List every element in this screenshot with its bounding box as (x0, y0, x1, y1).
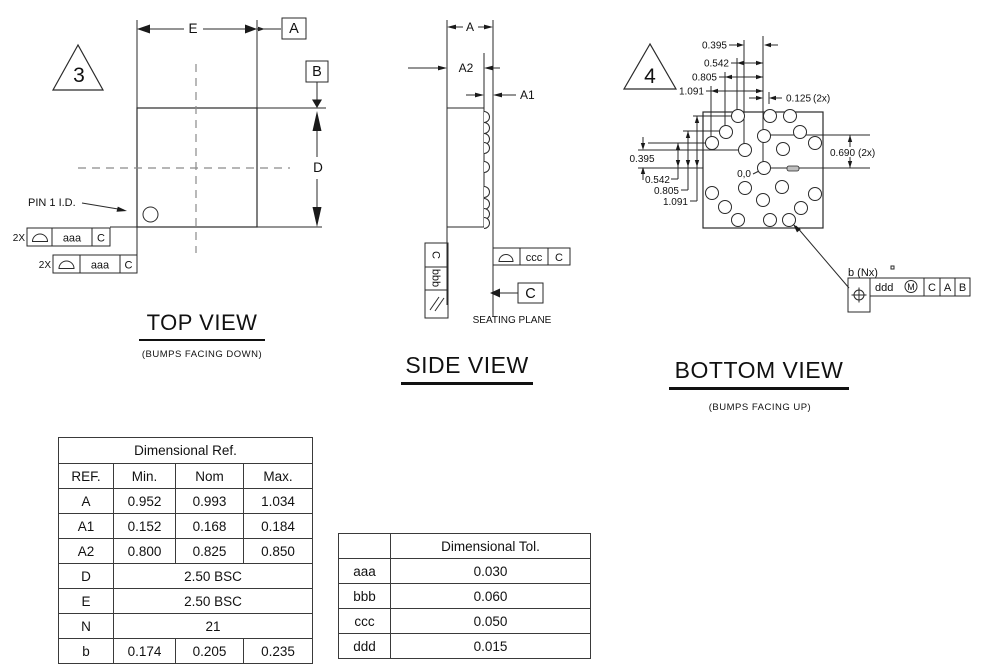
header-ref: REF. (59, 464, 114, 489)
cell: 0.850 (244, 539, 313, 564)
table-row: A 0.952 0.993 1.034 (59, 489, 313, 514)
cell: 0.030 (391, 559, 591, 584)
dim-left-0805: 0.805 (654, 131, 690, 197)
bottom-view-drawing: 4 0.395 0.542 0.805 (620, 20, 981, 320)
cell: 0.800 (114, 539, 176, 564)
pin1-indicator: PIN 1 I.D. (28, 197, 158, 222)
fcf-ccc-tol: ccc (526, 252, 543, 264)
top-view-title: TOP VIEW (139, 310, 265, 341)
dim-A: A (447, 20, 493, 34)
dimensional-ref-table: Dimensional Ref. REF. Min. Nom Max. A 0.… (58, 437, 313, 664)
fcf-position-datum1: C (928, 282, 936, 294)
dim-value: 0.125 (786, 94, 811, 105)
profile-surface-icon (499, 255, 513, 262)
cell: 0.168 (176, 514, 244, 539)
cell: 0.060 (391, 584, 591, 609)
flag-note-4: 4 (624, 44, 676, 89)
table-row: A2 0.800 0.825 0.850 (59, 539, 313, 564)
fcf2-datum: C (125, 260, 133, 272)
fcf2-tol: aaa (91, 260, 110, 272)
side-bumps (484, 112, 490, 229)
dim-top-1091: 1.091 (679, 87, 763, 98)
cell: 0.952 (114, 489, 176, 514)
fcf-ccc-datum: C (555, 252, 563, 264)
cell: 0.993 (176, 489, 244, 514)
datum-C-label: C (525, 286, 535, 302)
datum-C-box: C (490, 283, 543, 303)
fcf-profile-ccc: ccc C (493, 248, 570, 265)
cell: ccc (339, 609, 391, 634)
cell: 0.050 (391, 609, 591, 634)
table-title-row: Dimensional Tol. (339, 534, 591, 559)
cell: 0.152 (114, 514, 176, 539)
fcf-parallelism-tol: bbb (430, 269, 442, 287)
dim-value: 1.091 (679, 87, 704, 98)
table-row: ccc 0.050 (339, 609, 591, 634)
datum-A-label: A (289, 21, 299, 37)
dim-A1: A1 (466, 88, 535, 102)
profile-surface-icon (33, 234, 48, 242)
dimensional-tol-table: Dimensional Tol. aaa 0.030 bbb 0.060 ccc… (338, 533, 591, 659)
table-row: aaa 0.030 (339, 559, 591, 584)
dim-value: 0.542 (645, 175, 670, 186)
cell: 0.825 (176, 539, 244, 564)
table-row: b 0.174 0.205 0.235 (59, 639, 313, 664)
profile-surface-icon (59, 261, 74, 268)
fcf-profile-1: 2X aaa C (13, 228, 110, 246)
fcf1-datum: C (97, 233, 105, 245)
cell: 0.174 (114, 639, 176, 664)
datum-A-box: A (282, 18, 306, 39)
cell: N (59, 614, 114, 639)
fcf-parallelism-datum: C (430, 251, 442, 259)
dim-value: 0.542 (704, 59, 729, 70)
top-view-drawing: 3 E A B (0, 0, 345, 300)
dim-value: 0.690 (830, 148, 855, 159)
fcf-parallelism: C bbb (425, 243, 448, 318)
side-view-title: SIDE VIEW (401, 352, 533, 385)
dim-E: E (137, 21, 281, 36)
table-row: A1 0.152 0.168 0.184 (59, 514, 313, 539)
dim-pitch-0125: 0.125 (2x) (749, 92, 830, 105)
bottom-view-title: BOTTOM VIEW (669, 357, 849, 390)
flag-note-3: 3 (53, 45, 103, 90)
fcf2-qty: 2X (39, 260, 52, 271)
orientation-feature (787, 166, 799, 171)
dim-A1-label: A1 (520, 88, 535, 102)
dim-A2: A2 (408, 61, 500, 75)
drawing-sheet: 3 E A B (0, 0, 981, 670)
cell: 0.184 (244, 514, 313, 539)
fcf1-tol: aaa (63, 233, 82, 245)
cell: A2 (59, 539, 114, 564)
dim-value: 0.805 (692, 73, 717, 84)
dim-top-0542: 0.542 (704, 59, 763, 70)
seating-plane-label: SEATING PLANE (473, 315, 552, 326)
flag-4-number: 4 (644, 65, 656, 88)
table-header-row: REF. Min. Nom Max. (59, 464, 313, 489)
origin-callout: 0,0 (737, 169, 759, 180)
dim-D-label: D (313, 160, 323, 175)
origin-label: 0,0 (737, 169, 751, 180)
fcf-profile-2: 2X aaa C (39, 255, 137, 273)
bump-callout-label: b (Nx) (848, 267, 878, 279)
bottom-view-subtitle: (BUMPS FACING UP) (686, 402, 834, 413)
position-tolerance-icon (852, 288, 867, 303)
dim-A2-label: A2 (459, 61, 474, 75)
mmc-modifier-icon: M (905, 281, 917, 293)
cell: A1 (59, 514, 114, 539)
cell: 2.50 BSC (114, 564, 313, 589)
cell: aaa (339, 559, 391, 584)
table-title-row: Dimensional Ref. (59, 438, 313, 464)
cell: bbb (339, 584, 391, 609)
datum-B-box: B (306, 61, 328, 108)
table-title: Dimensional Ref. (59, 438, 313, 464)
dim-value: 0.395 (702, 41, 727, 52)
flag-3-number: 3 (73, 64, 85, 87)
dim-value: 1.091 (663, 197, 688, 208)
cell: A (59, 489, 114, 514)
cell: E (59, 589, 114, 614)
side-view-drawing: A A2 A1 C bbb (395, 0, 610, 340)
table-row: E 2.50 BSC (59, 589, 313, 614)
header-nom: Nom (176, 464, 244, 489)
cell: ddd (339, 634, 391, 659)
fcf-position-datum2: A (944, 282, 952, 294)
dim-value: 0.805 (654, 186, 679, 197)
table-row: D 2.50 BSC (59, 564, 313, 589)
table-title: Dimensional Tol. (391, 534, 591, 559)
mmc-letter: M (907, 282, 915, 292)
dim-top-0395: 0.395 (702, 41, 778, 52)
dim-top-0805: 0.805 (692, 73, 763, 84)
datum-B-label: B (312, 64, 322, 80)
cell: 0.235 (244, 639, 313, 664)
fcf-position-tol: ddd (875, 282, 893, 294)
dim-qty: (2x) (813, 94, 830, 105)
fcf-position-datum3: B (959, 282, 966, 294)
package-outline-side (447, 108, 484, 227)
footnote-mark (891, 266, 894, 269)
dim-qty: (2x) (858, 148, 875, 159)
dim-A-label: A (466, 20, 474, 34)
parallelism-icon (430, 297, 444, 311)
pin1-label: PIN 1 I.D. (28, 197, 76, 209)
top-view-subtitle: (BUMPS FACING DOWN) (123, 349, 281, 360)
cell: 0.015 (391, 634, 591, 659)
dim-row-0690: 0.690 (2x) (830, 135, 875, 168)
header-min: Min. (114, 464, 176, 489)
cell: b (59, 639, 114, 664)
cell: D (59, 564, 114, 589)
cell: 2.50 BSC (114, 589, 313, 614)
dim-D: D (313, 111, 324, 227)
dim-E-label: E (188, 21, 197, 36)
header-max: Max. (244, 464, 313, 489)
table-row: ddd 0.015 (339, 634, 591, 659)
dim-value: 0.395 (629, 154, 654, 165)
table-row: N 21 (59, 614, 313, 639)
cell: 21 (114, 614, 313, 639)
cell: 0.205 (176, 639, 244, 664)
table-row: bbb 0.060 (339, 584, 591, 609)
cell: 1.034 (244, 489, 313, 514)
cell-blank (339, 534, 391, 559)
fcf1-qty: 2X (13, 233, 26, 244)
fcf-position: ddd M C A B (848, 278, 970, 312)
